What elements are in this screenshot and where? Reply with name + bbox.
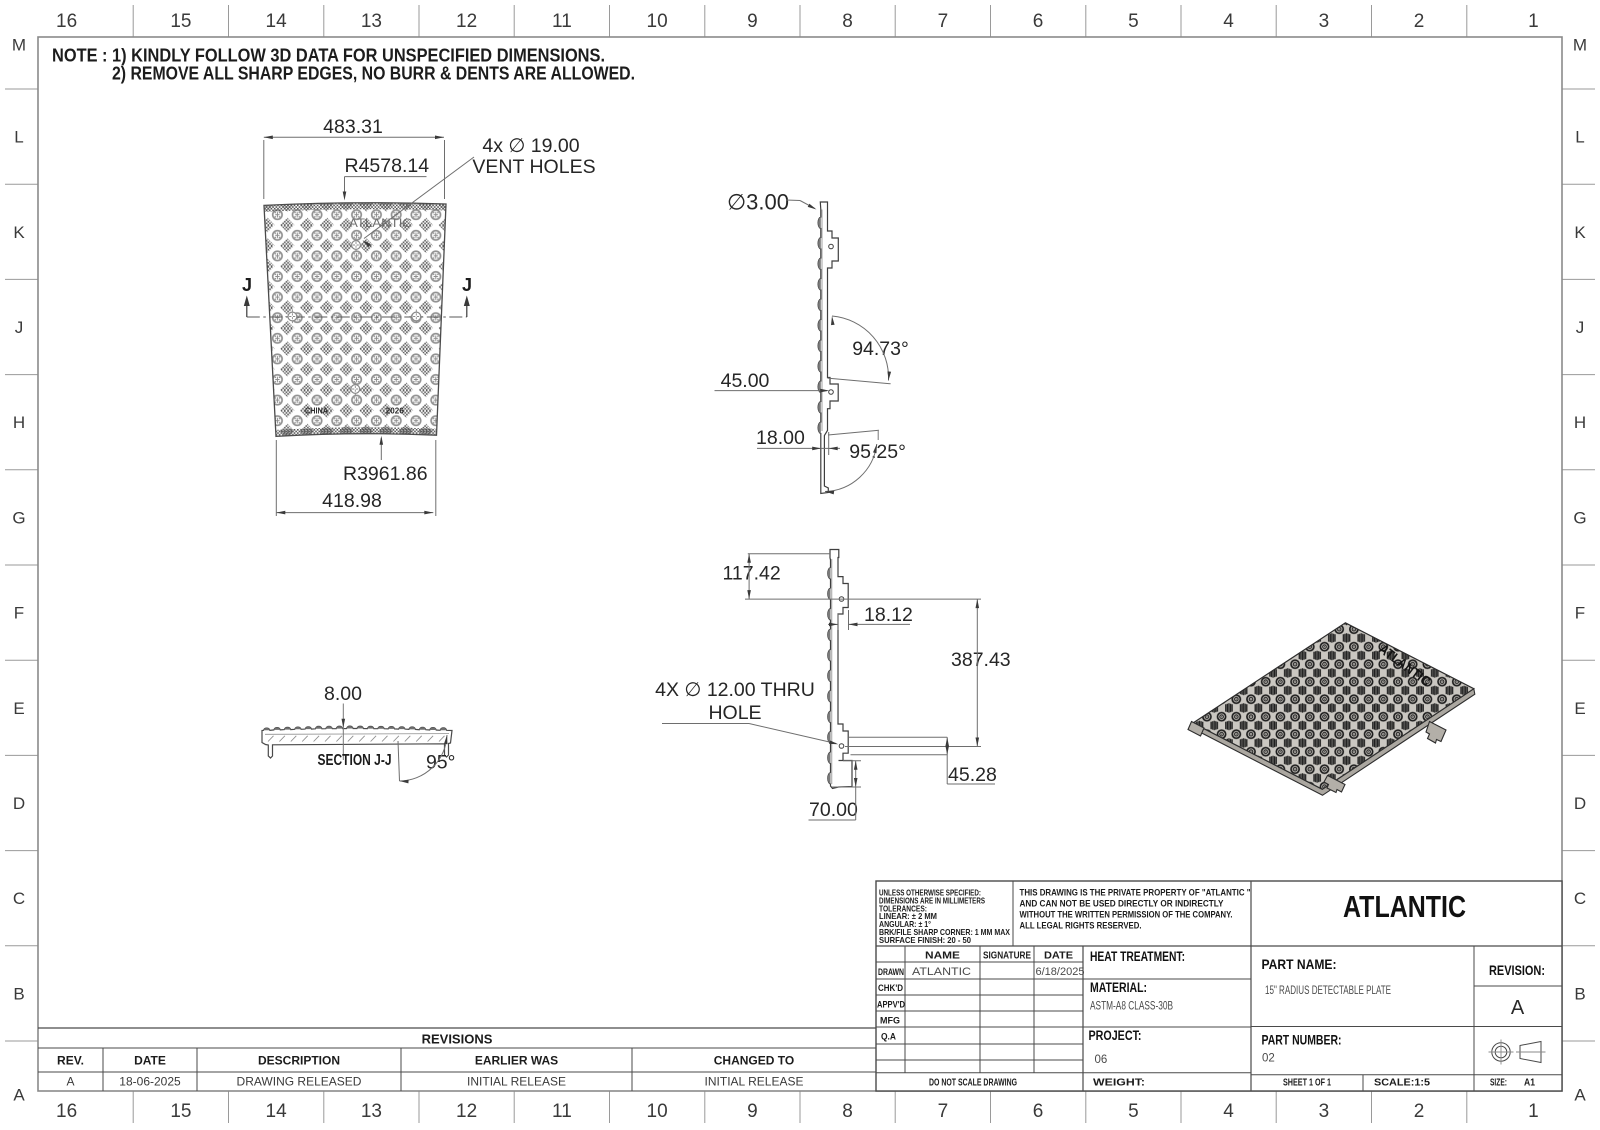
svg-text:483.31: 483.31 — [323, 116, 383, 138]
svg-text:WITHOUT THE WRITTEN PERMISSION: WITHOUT THE WRITTEN PERMISSION OF THE CO… — [1020, 910, 1233, 921]
svg-text:15: 15 — [170, 1101, 191, 1122]
svg-text:9: 9 — [747, 11, 758, 32]
svg-text:A: A — [13, 1086, 25, 1105]
svg-text:02: 02 — [1262, 1053, 1275, 1065]
svg-text:1: 1 — [1528, 1101, 1539, 1122]
svg-text:DO NOT SCALE DRAWING: DO NOT SCALE DRAWING — [929, 1077, 1017, 1089]
svg-text:REVISIONS: REVISIONS — [422, 1032, 493, 1047]
svg-text:B: B — [13, 984, 24, 1003]
svg-text:5: 5 — [1128, 11, 1139, 32]
svg-text:DATE: DATE — [134, 1054, 166, 1068]
svg-text:3: 3 — [1319, 1101, 1330, 1122]
svg-text:16: 16 — [56, 11, 77, 32]
svg-text:NOTE : 1) KINDLY FOLLOW 3D DAT: NOTE : 1) KINDLY FOLLOW 3D DATA FOR UNSP… — [52, 46, 605, 66]
svg-text:11: 11 — [552, 11, 572, 32]
svg-text:D: D — [13, 794, 25, 813]
svg-text:R3961.86: R3961.86 — [343, 463, 428, 485]
svg-text:K: K — [13, 223, 25, 242]
svg-text:18-06-2025: 18-06-2025 — [119, 1075, 181, 1089]
svg-text:VENT HOLES: VENT HOLES — [472, 156, 595, 178]
svg-text:SHEET 1 OF 1: SHEET 1 OF 1 — [1283, 1077, 1331, 1089]
svg-text:G: G — [12, 508, 25, 527]
svg-text:SCALE:1:5: SCALE:1:5 — [1374, 1077, 1430, 1089]
svg-text:CHK'D: CHK'D — [878, 983, 903, 994]
svg-text:L: L — [1575, 128, 1584, 147]
svg-text:06: 06 — [1095, 1054, 1108, 1066]
svg-text:117.42: 117.42 — [723, 562, 781, 584]
svg-text:J: J — [462, 275, 472, 295]
svg-text:10: 10 — [647, 1101, 668, 1122]
svg-text:4: 4 — [1223, 1101, 1234, 1122]
svg-text:THIS DRAWING IS THE PRIVATE PR: THIS DRAWING IS THE PRIVATE PROPERTY OF … — [1020, 888, 1251, 899]
svg-text:PART NAME:: PART NAME: — [1262, 956, 1337, 972]
svg-text:18.12: 18.12 — [864, 604, 913, 626]
svg-text:B: B — [1574, 984, 1585, 1003]
svg-text:12: 12 — [456, 1101, 477, 1122]
svg-text:K: K — [1574, 223, 1586, 242]
svg-text:PART NUMBER:: PART NUMBER: — [1262, 1032, 1342, 1048]
svg-text:6: 6 — [1033, 11, 1044, 32]
svg-text:Q.A: Q.A — [881, 1032, 896, 1043]
svg-text:14: 14 — [266, 1101, 288, 1122]
svg-text:ALL LEGAL RIGHTS RESERVED.: ALL LEGAL RIGHTS RESERVED. — [1020, 921, 1142, 932]
svg-text:16: 16 — [56, 1101, 77, 1122]
svg-text:WEIGHT:: WEIGHT: — [1093, 1077, 1145, 1089]
svg-text:4X ∅ 12.00 THRU: 4X ∅ 12.00 THRU — [655, 679, 815, 701]
svg-text:REV.: REV. — [57, 1054, 84, 1068]
svg-text:SURFACE FINISH: 20 - 50: SURFACE FINISH: 20 - 50 — [879, 935, 971, 945]
svg-text:L: L — [14, 128, 23, 147]
svg-text:MFG: MFG — [880, 1016, 900, 1027]
svg-text:HEAT TREATMENT:: HEAT TREATMENT: — [1090, 949, 1185, 964]
svg-text:F: F — [1575, 604, 1585, 623]
svg-text:J: J — [242, 275, 252, 295]
svg-text:H: H — [1574, 413, 1586, 432]
svg-text:3: 3 — [1319, 11, 1330, 32]
svg-text:INITIAL RELEASE: INITIAL RELEASE — [705, 1075, 804, 1089]
svg-text:A1: A1 — [1524, 1077, 1535, 1089]
svg-text:REVISION:: REVISION: — [1489, 962, 1545, 978]
svg-text:8: 8 — [842, 11, 853, 32]
svg-text:7: 7 — [938, 1101, 949, 1122]
svg-text:45.00: 45.00 — [721, 370, 770, 392]
svg-text:DESCRIPTION: DESCRIPTION — [258, 1054, 340, 1068]
svg-text:9: 9 — [747, 1101, 758, 1122]
svg-text:J: J — [15, 318, 24, 337]
svg-text:2: 2 — [1414, 11, 1425, 32]
svg-text:15" RADIUS DETECTABLE PLATE: 15" RADIUS DETECTABLE PLATE — [1265, 985, 1391, 997]
svg-text:ATLANTIC: ATLANTIC — [1343, 889, 1466, 924]
svg-text:7: 7 — [938, 11, 949, 32]
svg-text:SIZE:: SIZE: — [1490, 1077, 1507, 1089]
svg-text:ASTM-A8 CLASS-30B: ASTM-A8 CLASS-30B — [1090, 1001, 1173, 1013]
svg-text:CHANGED TO: CHANGED TO — [714, 1054, 794, 1068]
svg-text:8: 8 — [842, 1101, 853, 1122]
svg-text:SECTION J-J: SECTION J-J — [318, 752, 392, 769]
svg-text:95.25°: 95.25° — [849, 441, 906, 463]
svg-text:5: 5 — [1128, 1101, 1139, 1122]
svg-text:D: D — [1574, 794, 1586, 813]
svg-text:SIGNATURE: SIGNATURE — [983, 951, 1031, 962]
svg-text:8.00: 8.00 — [324, 683, 362, 705]
svg-text:2026: 2026 — [386, 406, 404, 416]
svg-text:MATERIAL:: MATERIAL: — [1090, 980, 1147, 995]
svg-text:4: 4 — [1223, 11, 1234, 32]
svg-text:C: C — [1574, 889, 1586, 908]
svg-text:18.00: 18.00 — [756, 427, 805, 449]
svg-text:HOLE: HOLE — [708, 702, 761, 724]
svg-text:10: 10 — [647, 11, 668, 32]
svg-text:C: C — [13, 889, 25, 908]
svg-text:H: H — [13, 413, 25, 432]
svg-text:∅3.00: ∅3.00 — [727, 190, 789, 215]
svg-text:94.73°: 94.73° — [852, 338, 909, 360]
svg-text:R4578.14: R4578.14 — [345, 155, 430, 177]
svg-text:A: A — [66, 1075, 74, 1089]
svg-text:EARLIER WAS: EARLIER WAS — [475, 1054, 558, 1068]
svg-text:13: 13 — [361, 1101, 382, 1122]
svg-text:95°: 95° — [426, 752, 456, 774]
svg-text:DRAWN: DRAWN — [878, 967, 904, 978]
svg-text:NAME: NAME — [925, 951, 960, 962]
svg-text:DATE: DATE — [1044, 951, 1073, 962]
svg-text:15: 15 — [170, 11, 191, 32]
svg-text:G: G — [1573, 508, 1586, 527]
svg-text:E: E — [13, 699, 24, 718]
svg-text:2: 2 — [1414, 1101, 1425, 1122]
svg-text:418.98: 418.98 — [322, 490, 382, 512]
svg-text:11: 11 — [552, 1101, 572, 1122]
svg-text:45.28: 45.28 — [948, 764, 997, 786]
svg-text:13: 13 — [361, 11, 382, 32]
svg-text:2) REMOVE ALL SHARP EDGES, NO: 2) REMOVE ALL SHARP EDGES, NO BURR & DEN… — [112, 64, 635, 84]
svg-text:E: E — [1574, 699, 1585, 718]
svg-text:M: M — [1573, 36, 1587, 55]
svg-text:ATLANTIC: ATLANTIC — [912, 966, 971, 978]
svg-text:ATLANTIC: ATLANTIC — [349, 216, 412, 230]
svg-text:A: A — [1574, 1086, 1586, 1105]
svg-text:INITIAL RELEASE: INITIAL RELEASE — [467, 1075, 566, 1089]
svg-text:PROJECT:: PROJECT: — [1089, 1028, 1142, 1043]
svg-text:DRAWING RELEASED: DRAWING RELEASED — [237, 1075, 362, 1089]
svg-text:70.00: 70.00 — [809, 799, 858, 821]
svg-text:6/18/2025: 6/18/2025 — [1036, 966, 1085, 978]
svg-text:CHINA: CHINA — [305, 406, 328, 416]
svg-text:F: F — [14, 604, 24, 623]
svg-text:14: 14 — [266, 11, 288, 32]
svg-text:6: 6 — [1033, 1101, 1044, 1122]
svg-text:A: A — [1511, 997, 1525, 1019]
svg-text:12: 12 — [456, 11, 477, 32]
svg-text:AND CAN NOT BE USED DIRECTLY O: AND CAN NOT BE USED DIRECTLY OR INDIRECT… — [1020, 899, 1225, 910]
svg-text:1: 1 — [1528, 11, 1539, 32]
svg-text:M: M — [12, 36, 26, 55]
svg-text:387.43: 387.43 — [951, 649, 1011, 671]
svg-text:4x ∅ 19.00: 4x ∅ 19.00 — [482, 135, 579, 157]
svg-text:APPV'D: APPV'D — [877, 1000, 905, 1011]
svg-text:J: J — [1576, 318, 1585, 337]
